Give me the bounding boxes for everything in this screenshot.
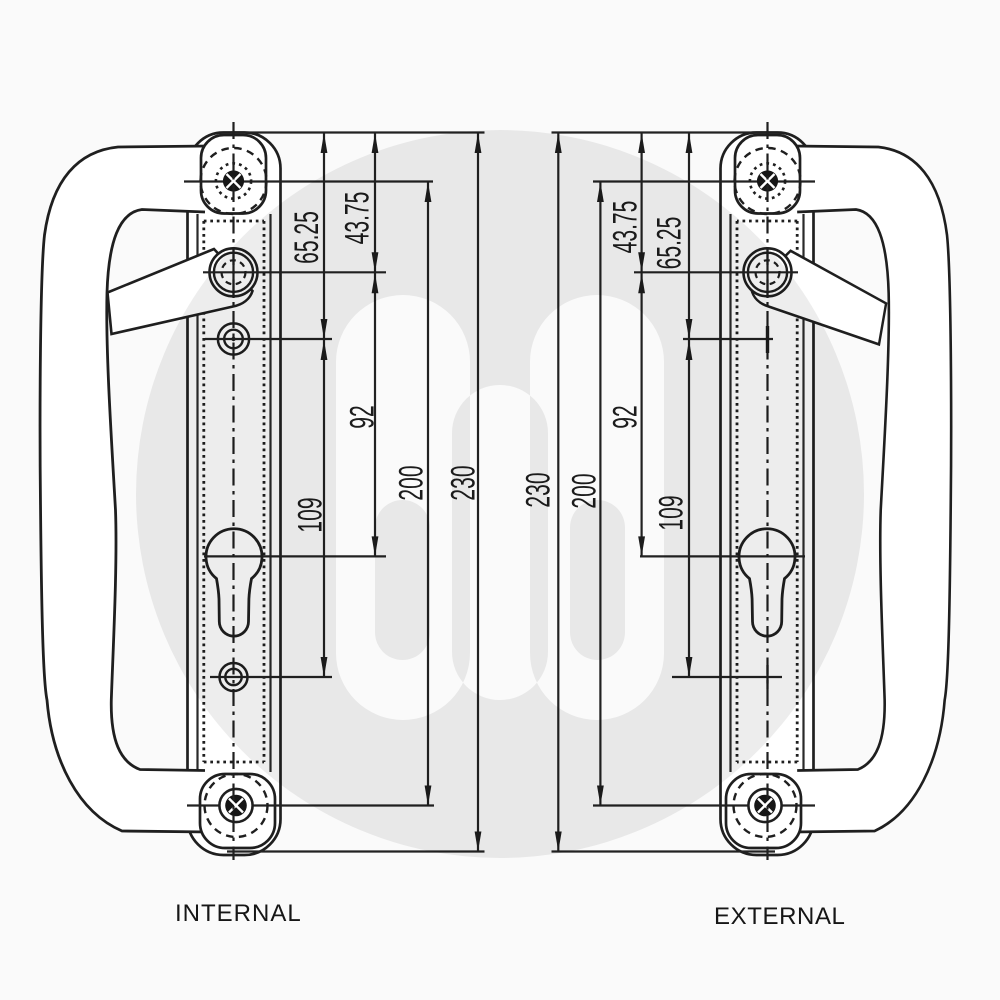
svg-text:92: 92 bbox=[342, 405, 380, 428]
svg-text:EXTERNAL: EXTERNAL bbox=[714, 903, 846, 930]
svg-text:200: 200 bbox=[391, 465, 429, 500]
svg-text:INTERNAL: INTERNAL bbox=[175, 900, 302, 927]
svg-text:92: 92 bbox=[605, 405, 643, 428]
